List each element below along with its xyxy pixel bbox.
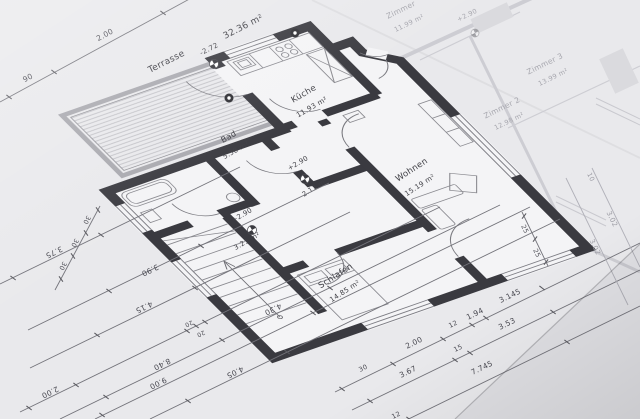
lighting-overlay xyxy=(0,0,640,419)
floor-plan-drawing: Zimmer 11.99 m² +2.90 Zimmer 3 13.99 m² … xyxy=(0,0,640,419)
blueprint-photo: Zimmer 11.99 m² +2.90 Zimmer 3 13.99 m² … xyxy=(0,0,640,419)
